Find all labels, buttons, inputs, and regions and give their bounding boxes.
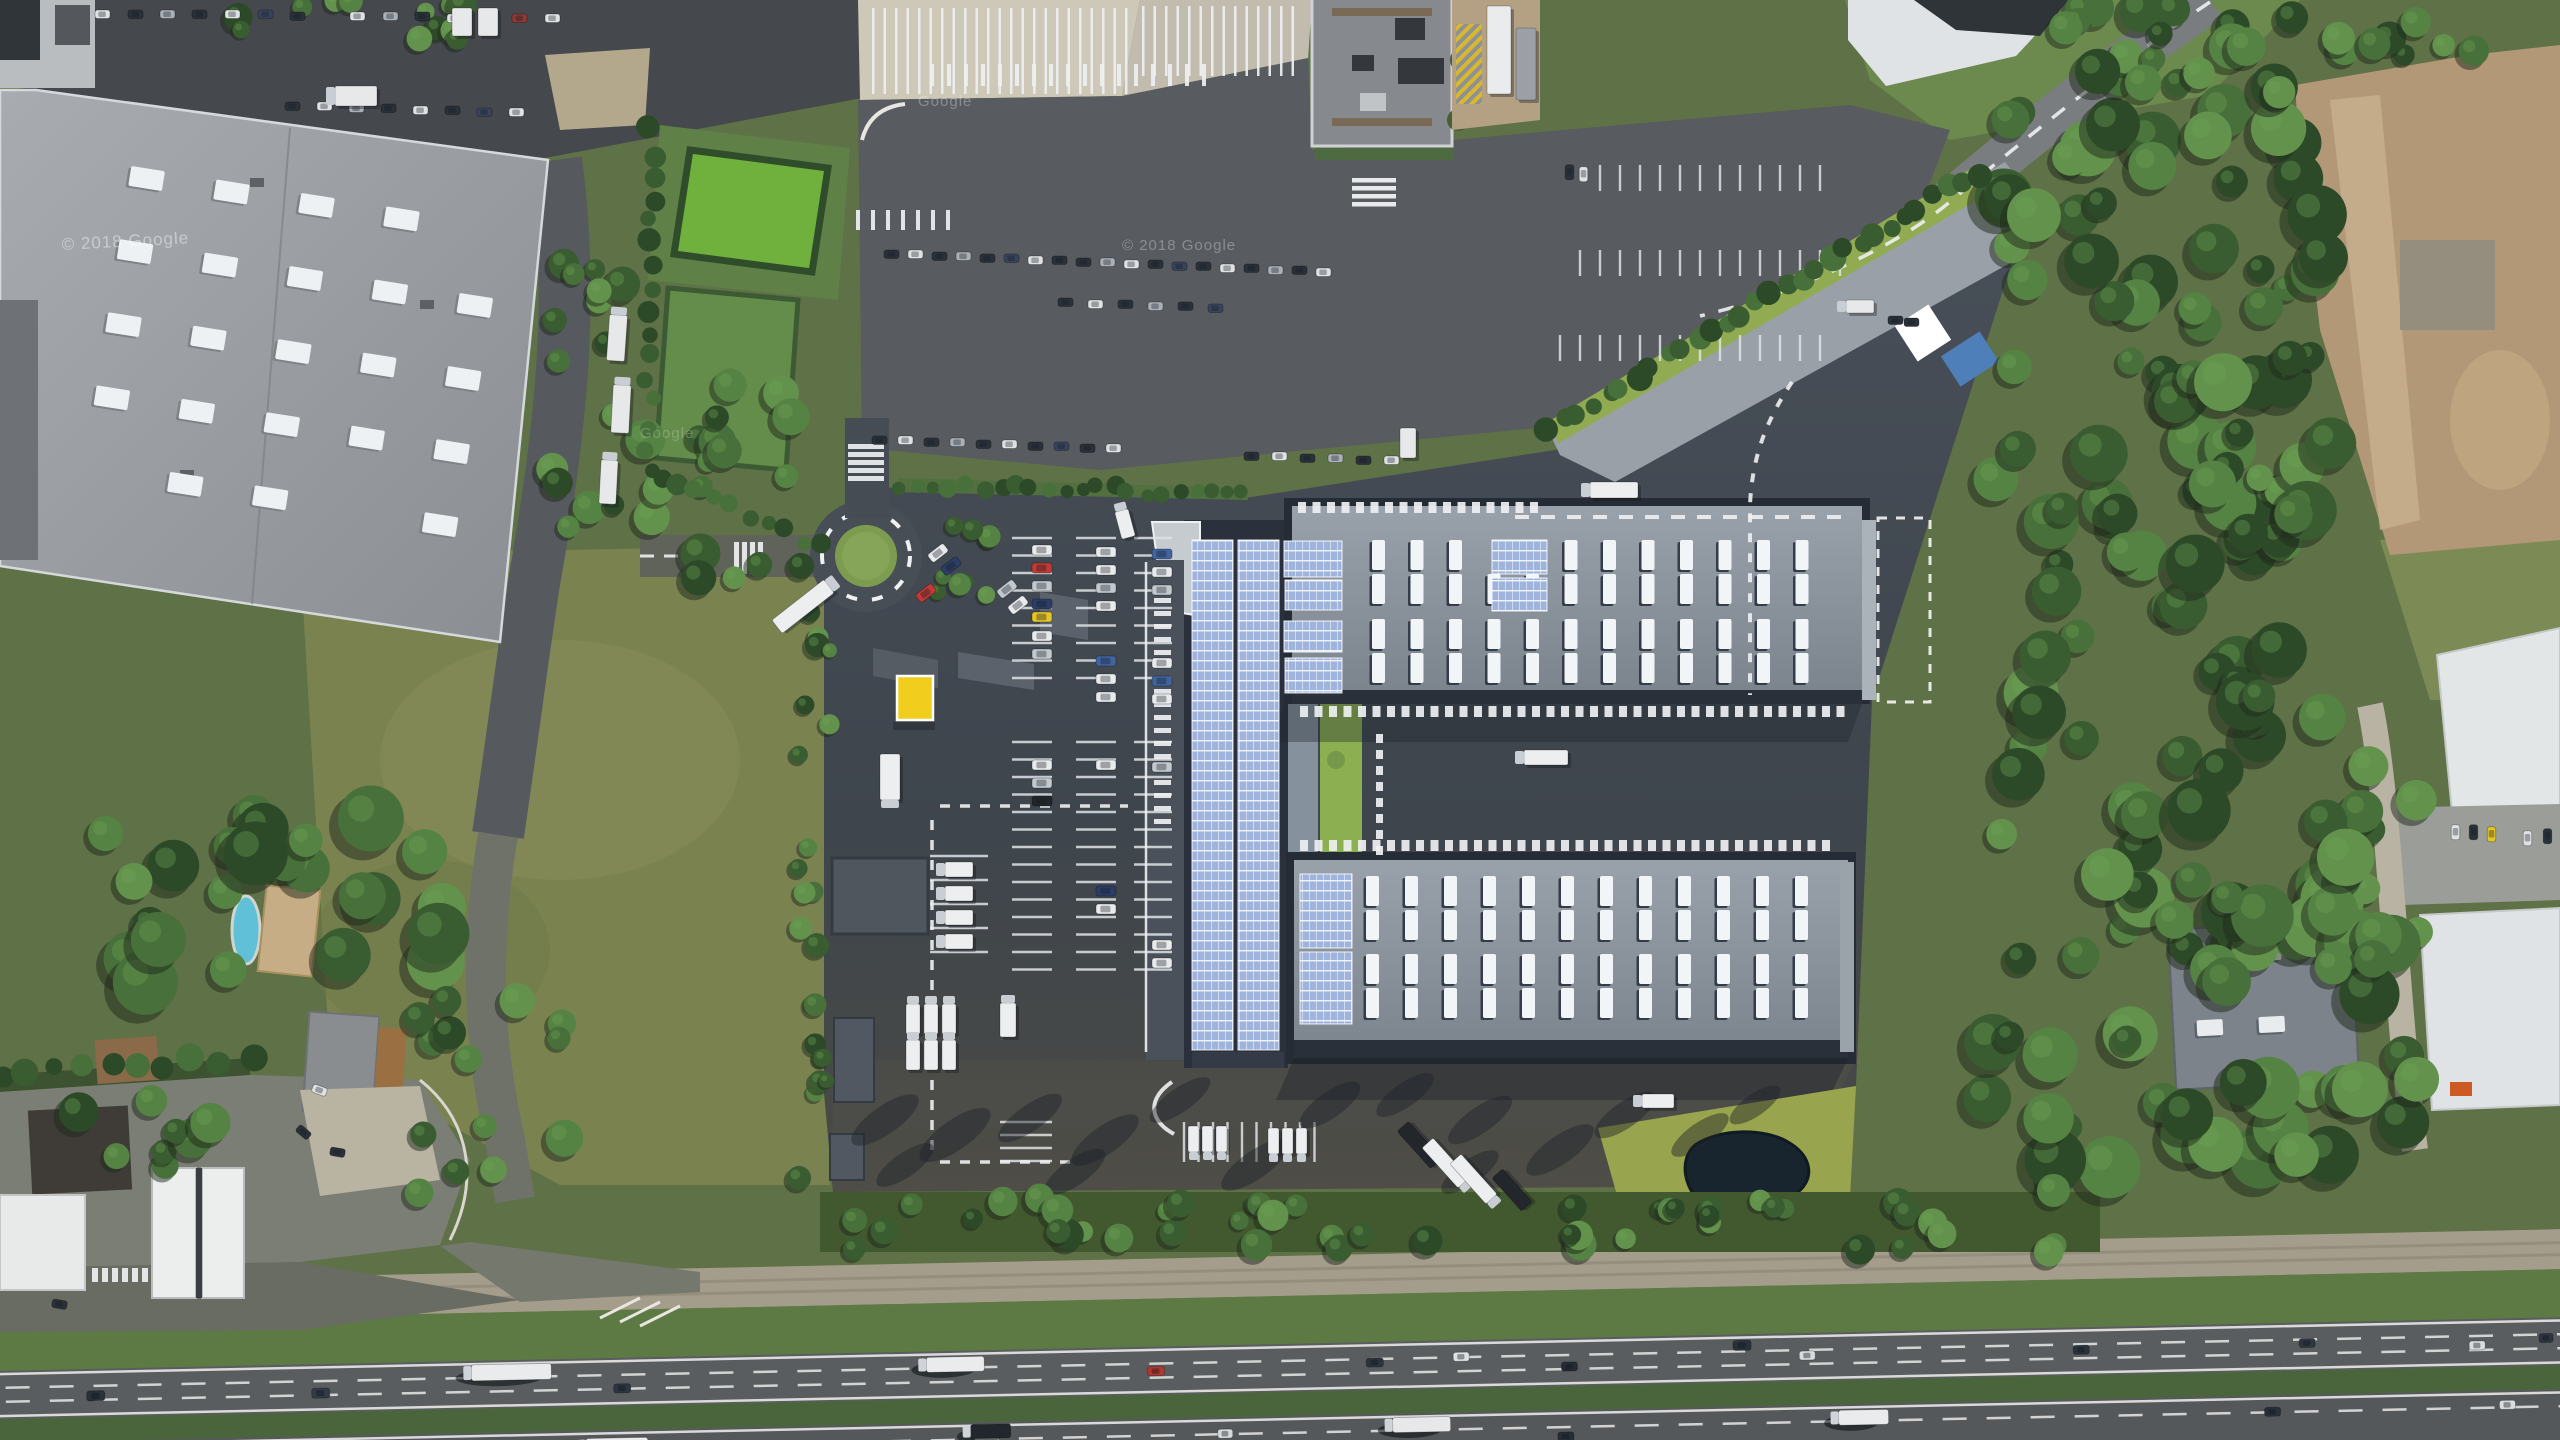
highway-vehicle bbox=[1147, 1366, 1164, 1375]
car-glass bbox=[1100, 676, 1110, 682]
parked-car bbox=[1152, 958, 1172, 968]
skylight bbox=[1522, 910, 1535, 940]
tree-highlight bbox=[2221, 170, 2234, 183]
tree-highlight bbox=[2347, 796, 2364, 813]
canopy-gap bbox=[196, 1168, 202, 1298]
car-glass bbox=[1007, 256, 1015, 261]
vehicle-glass bbox=[1562, 1434, 1569, 1440]
tree-highlight bbox=[65, 1098, 81, 1114]
tree-highlight bbox=[139, 920, 161, 942]
tree-highlight bbox=[2079, 433, 2102, 456]
tree-highlight bbox=[2248, 684, 2261, 697]
tree-highlight bbox=[2177, 788, 2202, 813]
skylight bbox=[1642, 619, 1655, 649]
tree-highlight bbox=[547, 472, 559, 484]
tree bbox=[843, 1238, 865, 1260]
photo-car bbox=[1178, 302, 1193, 311]
forklift-orange bbox=[2450, 1082, 2472, 1096]
photo-car bbox=[908, 250, 923, 259]
hedge-bush bbox=[640, 344, 659, 363]
highway-vehicle bbox=[1799, 1351, 1815, 1360]
car-glass bbox=[875, 438, 883, 443]
skylight bbox=[1372, 653, 1385, 683]
truck bbox=[1296, 1128, 1310, 1162]
tree-highlight bbox=[140, 1090, 153, 1103]
photo-car bbox=[1268, 266, 1283, 275]
photo-car bbox=[350, 12, 365, 21]
truck-body bbox=[1296, 1128, 1307, 1154]
truck-cab bbox=[1269, 1154, 1278, 1162]
watermark-lot: Google bbox=[918, 93, 972, 110]
skylight bbox=[1639, 988, 1652, 1018]
photo-car bbox=[512, 14, 527, 23]
truck-body bbox=[478, 8, 498, 36]
skylight bbox=[1372, 619, 1385, 649]
dock-tick bbox=[856, 210, 860, 230]
tree bbox=[2166, 534, 2225, 593]
tree bbox=[2189, 460, 2236, 507]
photo-car bbox=[477, 108, 492, 117]
tree bbox=[1986, 819, 2017, 850]
skylight bbox=[1372, 540, 1385, 570]
photo-car bbox=[1300, 454, 1315, 463]
dock-tick bbox=[930, 64, 934, 86]
tree-highlight bbox=[1246, 1234, 1259, 1247]
tree-highlight bbox=[2306, 240, 2326, 260]
dock-tick bbox=[1154, 611, 1171, 616]
dock-tick bbox=[1154, 715, 1171, 720]
car-glass bbox=[1100, 585, 1110, 591]
car-glass bbox=[1036, 633, 1046, 639]
truck bbox=[1282, 1128, 1296, 1162]
truck bbox=[1188, 1126, 1202, 1160]
skylight bbox=[1411, 540, 1424, 570]
photo-car bbox=[976, 440, 991, 449]
tree bbox=[116, 863, 153, 900]
truck-body bbox=[945, 934, 973, 949]
tree-highlight bbox=[610, 272, 624, 286]
photo-car bbox=[884, 250, 899, 259]
parked-car bbox=[1096, 656, 1116, 666]
car-glass bbox=[1156, 660, 1166, 666]
hedge-bush bbox=[743, 510, 759, 526]
photo-car bbox=[95, 10, 110, 19]
dock-tick bbox=[946, 210, 950, 230]
truck-body bbox=[1590, 482, 1638, 498]
dock-tick bbox=[92, 1268, 98, 1282]
skylight bbox=[1600, 988, 1613, 1018]
dock-tick bbox=[1022, 8, 1025, 94]
truck-body bbox=[942, 1004, 956, 1034]
tree bbox=[444, 1159, 470, 1185]
truck-cab bbox=[1297, 1154, 1306, 1162]
tree-highlight bbox=[2145, 50, 2155, 60]
parked-car bbox=[1096, 674, 1116, 684]
dock-tick bbox=[1605, 840, 1613, 851]
dock-tick bbox=[907, 8, 910, 94]
dock-tick bbox=[1416, 840, 1424, 851]
tree-highlight bbox=[324, 936, 346, 958]
truck-cab bbox=[1283, 1154, 1292, 1162]
tree-highlight bbox=[2103, 500, 2119, 516]
car-glass bbox=[1005, 442, 1013, 447]
truck-body bbox=[1202, 1126, 1213, 1152]
tree bbox=[788, 553, 814, 579]
tree bbox=[543, 468, 573, 498]
tree bbox=[2078, 1136, 2140, 1198]
tree-highlight bbox=[2385, 1104, 2406, 1125]
dock-tick bbox=[1387, 706, 1395, 717]
tree-highlight bbox=[2354, 752, 2370, 768]
car-glass bbox=[512, 110, 520, 115]
tree-highlight bbox=[2326, 837, 2349, 860]
truck-body bbox=[924, 1040, 938, 1070]
tree-highlight bbox=[2031, 1101, 2051, 1121]
dock-tick bbox=[1532, 840, 1540, 851]
solar-panel-array bbox=[1285, 580, 1342, 610]
dock-tick bbox=[1154, 689, 1171, 694]
tree-highlight bbox=[2090, 192, 2103, 205]
dock-tick bbox=[1154, 637, 1171, 642]
tree-highlight bbox=[2205, 92, 2227, 114]
truck-cab bbox=[936, 863, 945, 876]
hedge-bush bbox=[774, 518, 793, 537]
dock-tick bbox=[1344, 706, 1352, 717]
car-glass bbox=[1891, 318, 1899, 323]
skylight bbox=[1565, 653, 1578, 683]
gravel-shoulder bbox=[545, 48, 650, 130]
skylight bbox=[1449, 619, 1462, 649]
car-glass bbox=[416, 108, 424, 113]
tree bbox=[587, 278, 612, 303]
tree-highlight bbox=[2068, 943, 2083, 958]
vehicle-glass bbox=[1565, 1364, 1572, 1370]
lawn-mottle bbox=[1327, 751, 1345, 769]
dock-tick bbox=[1356, 502, 1364, 513]
vehicle-body bbox=[971, 1424, 1011, 1439]
tree-highlight bbox=[2250, 293, 2266, 309]
photo-car bbox=[413, 106, 428, 115]
car-glass bbox=[1100, 567, 1110, 573]
toll-canopy bbox=[152, 1168, 196, 1298]
tree-highlight bbox=[686, 565, 700, 579]
tree-highlight bbox=[2310, 806, 2327, 823]
photo-car bbox=[1316, 268, 1331, 277]
skylight bbox=[1717, 988, 1730, 1018]
dock-tick bbox=[1117, 64, 1121, 86]
car-glass bbox=[131, 12, 139, 17]
tree bbox=[805, 933, 829, 957]
skylight bbox=[1639, 954, 1652, 984]
car-glass bbox=[1175, 264, 1183, 269]
dock-tick bbox=[1327, 502, 1335, 513]
skylight bbox=[1411, 653, 1424, 683]
car-glass bbox=[1103, 260, 1111, 265]
roof-vent bbox=[420, 300, 434, 309]
truck-cab bbox=[1515, 751, 1524, 764]
dock-tick bbox=[1648, 840, 1656, 851]
dock-tick bbox=[1402, 840, 1410, 851]
dock-tick bbox=[1300, 706, 1308, 717]
tree-highlight bbox=[1233, 1215, 1240, 1222]
vehicle-glass bbox=[316, 1390, 324, 1396]
car-glass bbox=[1036, 614, 1046, 620]
tree-highlight bbox=[2013, 266, 2029, 282]
skylight bbox=[1405, 988, 1418, 1018]
car-glass bbox=[1156, 678, 1166, 684]
car-glass bbox=[1156, 942, 1166, 948]
tree-highlight bbox=[1932, 1224, 1943, 1235]
tree bbox=[104, 1143, 130, 1169]
dock-tick bbox=[1177, 6, 1180, 76]
car-glass bbox=[98, 12, 106, 17]
tree-highlight bbox=[2191, 119, 2210, 138]
car-glass bbox=[1055, 258, 1063, 263]
skylight bbox=[1372, 574, 1385, 604]
car-glass bbox=[448, 108, 456, 113]
dock-tick bbox=[1165, 6, 1168, 76]
hedge-bush bbox=[1204, 483, 1219, 498]
photo-car bbox=[381, 104, 396, 113]
car-glass bbox=[1100, 694, 1110, 700]
dock-tick bbox=[1460, 840, 1468, 851]
tree bbox=[2184, 112, 2232, 160]
tree-highlight bbox=[712, 439, 726, 453]
tree-highlight bbox=[1702, 1208, 1710, 1216]
truck-body bbox=[1516, 28, 1536, 100]
skylight bbox=[1526, 619, 1539, 649]
tree bbox=[823, 643, 837, 657]
parked-car bbox=[1096, 692, 1116, 702]
tree-highlight bbox=[156, 1143, 166, 1153]
vehicle-cab bbox=[918, 1358, 926, 1371]
tree bbox=[2007, 260, 2047, 300]
tree bbox=[405, 1178, 434, 1207]
solar-panel-array bbox=[1285, 658, 1342, 693]
skylight bbox=[1639, 910, 1652, 940]
tree-highlight bbox=[846, 1241, 855, 1250]
truck-body bbox=[1487, 6, 1511, 94]
tree bbox=[2251, 622, 2306, 677]
car-glass bbox=[2453, 828, 2458, 836]
tree bbox=[2086, 98, 2140, 152]
tree bbox=[1891, 1236, 1914, 1259]
dock-tick bbox=[1385, 502, 1393, 513]
truck-cab bbox=[943, 1032, 955, 1040]
tree-highlight bbox=[952, 577, 961, 586]
car-glass bbox=[1100, 906, 1110, 912]
skylight bbox=[1796, 574, 1809, 604]
skylight bbox=[1795, 876, 1808, 906]
hedge-bush bbox=[644, 256, 663, 275]
highway-vehicle bbox=[957, 1424, 1011, 1440]
tree bbox=[1104, 1224, 1133, 1253]
skylight bbox=[1411, 619, 1424, 649]
skylight bbox=[1405, 954, 1418, 984]
dock-tick bbox=[1010, 8, 1013, 94]
car-glass bbox=[1127, 262, 1135, 267]
tree-highlight bbox=[2175, 543, 2198, 566]
tree-highlight bbox=[2227, 1066, 2246, 1085]
skylight bbox=[1642, 540, 1655, 570]
tree bbox=[164, 1119, 189, 1144]
tree-highlight bbox=[417, 912, 442, 937]
truck-cab bbox=[925, 1032, 937, 1040]
hedge-bush bbox=[71, 1054, 93, 1076]
skylight bbox=[1680, 653, 1693, 683]
tree-highlight bbox=[808, 1037, 817, 1046]
dock-tick bbox=[1501, 502, 1509, 513]
tree bbox=[2005, 943, 2037, 975]
vehicle-body bbox=[926, 1356, 984, 1372]
tree bbox=[2332, 1061, 2388, 1117]
dock-tick bbox=[1443, 502, 1451, 513]
truck-cab bbox=[1189, 1152, 1198, 1160]
truck-body bbox=[1216, 1126, 1227, 1152]
car-glass bbox=[911, 252, 919, 257]
tree bbox=[433, 1016, 466, 1049]
dock-tick bbox=[1400, 502, 1408, 513]
dock-tick bbox=[1045, 8, 1048, 94]
dock-tick bbox=[1518, 840, 1526, 851]
tree-highlight bbox=[790, 1170, 800, 1180]
dock-tick bbox=[1503, 840, 1511, 851]
hedge-bush bbox=[1117, 483, 1134, 500]
tree bbox=[2070, 425, 2128, 483]
dock-tick bbox=[1431, 706, 1439, 717]
photo-car bbox=[1565, 165, 1574, 180]
car-glass bbox=[1275, 454, 1283, 459]
parked-car bbox=[1152, 658, 1172, 668]
truck-cab bbox=[1217, 1152, 1226, 1160]
rooftop-unit-light bbox=[1360, 93, 1386, 111]
car-glass bbox=[901, 438, 909, 443]
truck-body bbox=[1846, 300, 1874, 313]
tree-highlight bbox=[107, 1147, 117, 1157]
tree-highlight bbox=[2233, 33, 2248, 48]
solar-panel-array bbox=[1284, 541, 1342, 577]
solar-panel-array bbox=[1492, 540, 1547, 574]
highway-vehicle bbox=[1561, 1362, 1577, 1371]
dock-tick bbox=[1315, 840, 1323, 851]
tree bbox=[1845, 1235, 1875, 1265]
tree bbox=[2274, 1132, 2319, 1177]
dock-tick bbox=[1822, 840, 1830, 851]
tree bbox=[2299, 233, 2348, 282]
hedge-bush bbox=[646, 391, 661, 406]
parked-car bbox=[1152, 549, 1172, 559]
truck-cab bbox=[936, 935, 945, 948]
vehicle-glass bbox=[618, 1386, 626, 1392]
tree bbox=[723, 566, 746, 589]
tree bbox=[2148, 22, 2173, 47]
truck-body bbox=[945, 886, 973, 901]
tree bbox=[1561, 1224, 1582, 1245]
tree bbox=[1285, 1194, 1307, 1216]
photo-car bbox=[1004, 254, 1019, 263]
tree bbox=[2125, 64, 2161, 100]
car-glass bbox=[1100, 762, 1110, 768]
tree-highlight bbox=[2436, 37, 2445, 46]
car-glass bbox=[1083, 446, 1091, 451]
car-glass bbox=[927, 440, 935, 445]
truck-cab bbox=[1203, 1152, 1212, 1160]
truck-cab bbox=[907, 996, 919, 1004]
vehicle-cab bbox=[1385, 1419, 1393, 1432]
tree bbox=[432, 986, 461, 1015]
tree-highlight bbox=[802, 841, 809, 848]
hedge-bush bbox=[151, 1057, 174, 1080]
solar-panel-array bbox=[1238, 540, 1279, 1050]
tree bbox=[2081, 848, 2134, 901]
tree bbox=[473, 1114, 497, 1138]
tree-highlight bbox=[2306, 701, 2325, 720]
tree-highlight bbox=[414, 1125, 424, 1135]
highway-vehicle bbox=[312, 1388, 330, 1398]
photo-car bbox=[1579, 167, 1588, 182]
tree bbox=[2273, 341, 2308, 376]
hedge-bush bbox=[637, 301, 659, 323]
tree-highlight bbox=[2130, 70, 2145, 85]
dock-tick bbox=[1429, 502, 1437, 513]
tree-highlight bbox=[2204, 658, 2219, 673]
hedge-bush bbox=[684, 480, 702, 498]
car-glass bbox=[979, 442, 987, 447]
dock-tick bbox=[916, 210, 920, 230]
car-glass bbox=[1156, 587, 1166, 593]
car-glass bbox=[1036, 762, 1046, 768]
tree bbox=[2317, 829, 2374, 886]
car-glass bbox=[228, 12, 236, 17]
nw-annex-unit bbox=[55, 5, 90, 45]
car-glass bbox=[386, 14, 394, 19]
dock-tick bbox=[1049, 64, 1053, 86]
dock-tick bbox=[981, 64, 985, 86]
toll-building-white bbox=[0, 1195, 85, 1290]
parked-car bbox=[1096, 760, 1116, 770]
tree-highlight bbox=[295, 0, 303, 8]
dock-tick bbox=[1487, 502, 1495, 513]
car-glass bbox=[1109, 446, 1117, 451]
dock-tick bbox=[1402, 706, 1410, 717]
truck-body bbox=[906, 1004, 920, 1034]
dock-tick bbox=[1246, 6, 1249, 76]
tree-highlight bbox=[2281, 1139, 2299, 1157]
photo-car bbox=[1148, 302, 1163, 311]
tree-highlight bbox=[294, 828, 307, 841]
tree-highlight bbox=[778, 468, 788, 478]
dock-tick bbox=[848, 452, 884, 457]
skylight bbox=[1488, 653, 1501, 683]
photo-car bbox=[1904, 318, 1919, 327]
skylight bbox=[1526, 653, 1539, 683]
dock-tick bbox=[1376, 798, 1383, 807]
skylight bbox=[1565, 574, 1578, 604]
photo-car bbox=[1028, 442, 1043, 451]
tree-highlight bbox=[121, 869, 136, 884]
truck-body bbox=[945, 862, 973, 877]
solar-panel-array bbox=[1300, 874, 1352, 948]
tree-highlight bbox=[2216, 886, 2229, 899]
tree-highlight bbox=[551, 1125, 566, 1140]
dock-tick bbox=[1142, 6, 1145, 76]
tree-highlight bbox=[408, 1007, 421, 1020]
photo-car bbox=[1148, 260, 1163, 269]
photo-car bbox=[2469, 825, 2478, 840]
hedge-bush bbox=[176, 1043, 204, 1071]
tree-highlight bbox=[2161, 906, 2176, 921]
tree-highlight bbox=[2405, 12, 2417, 24]
